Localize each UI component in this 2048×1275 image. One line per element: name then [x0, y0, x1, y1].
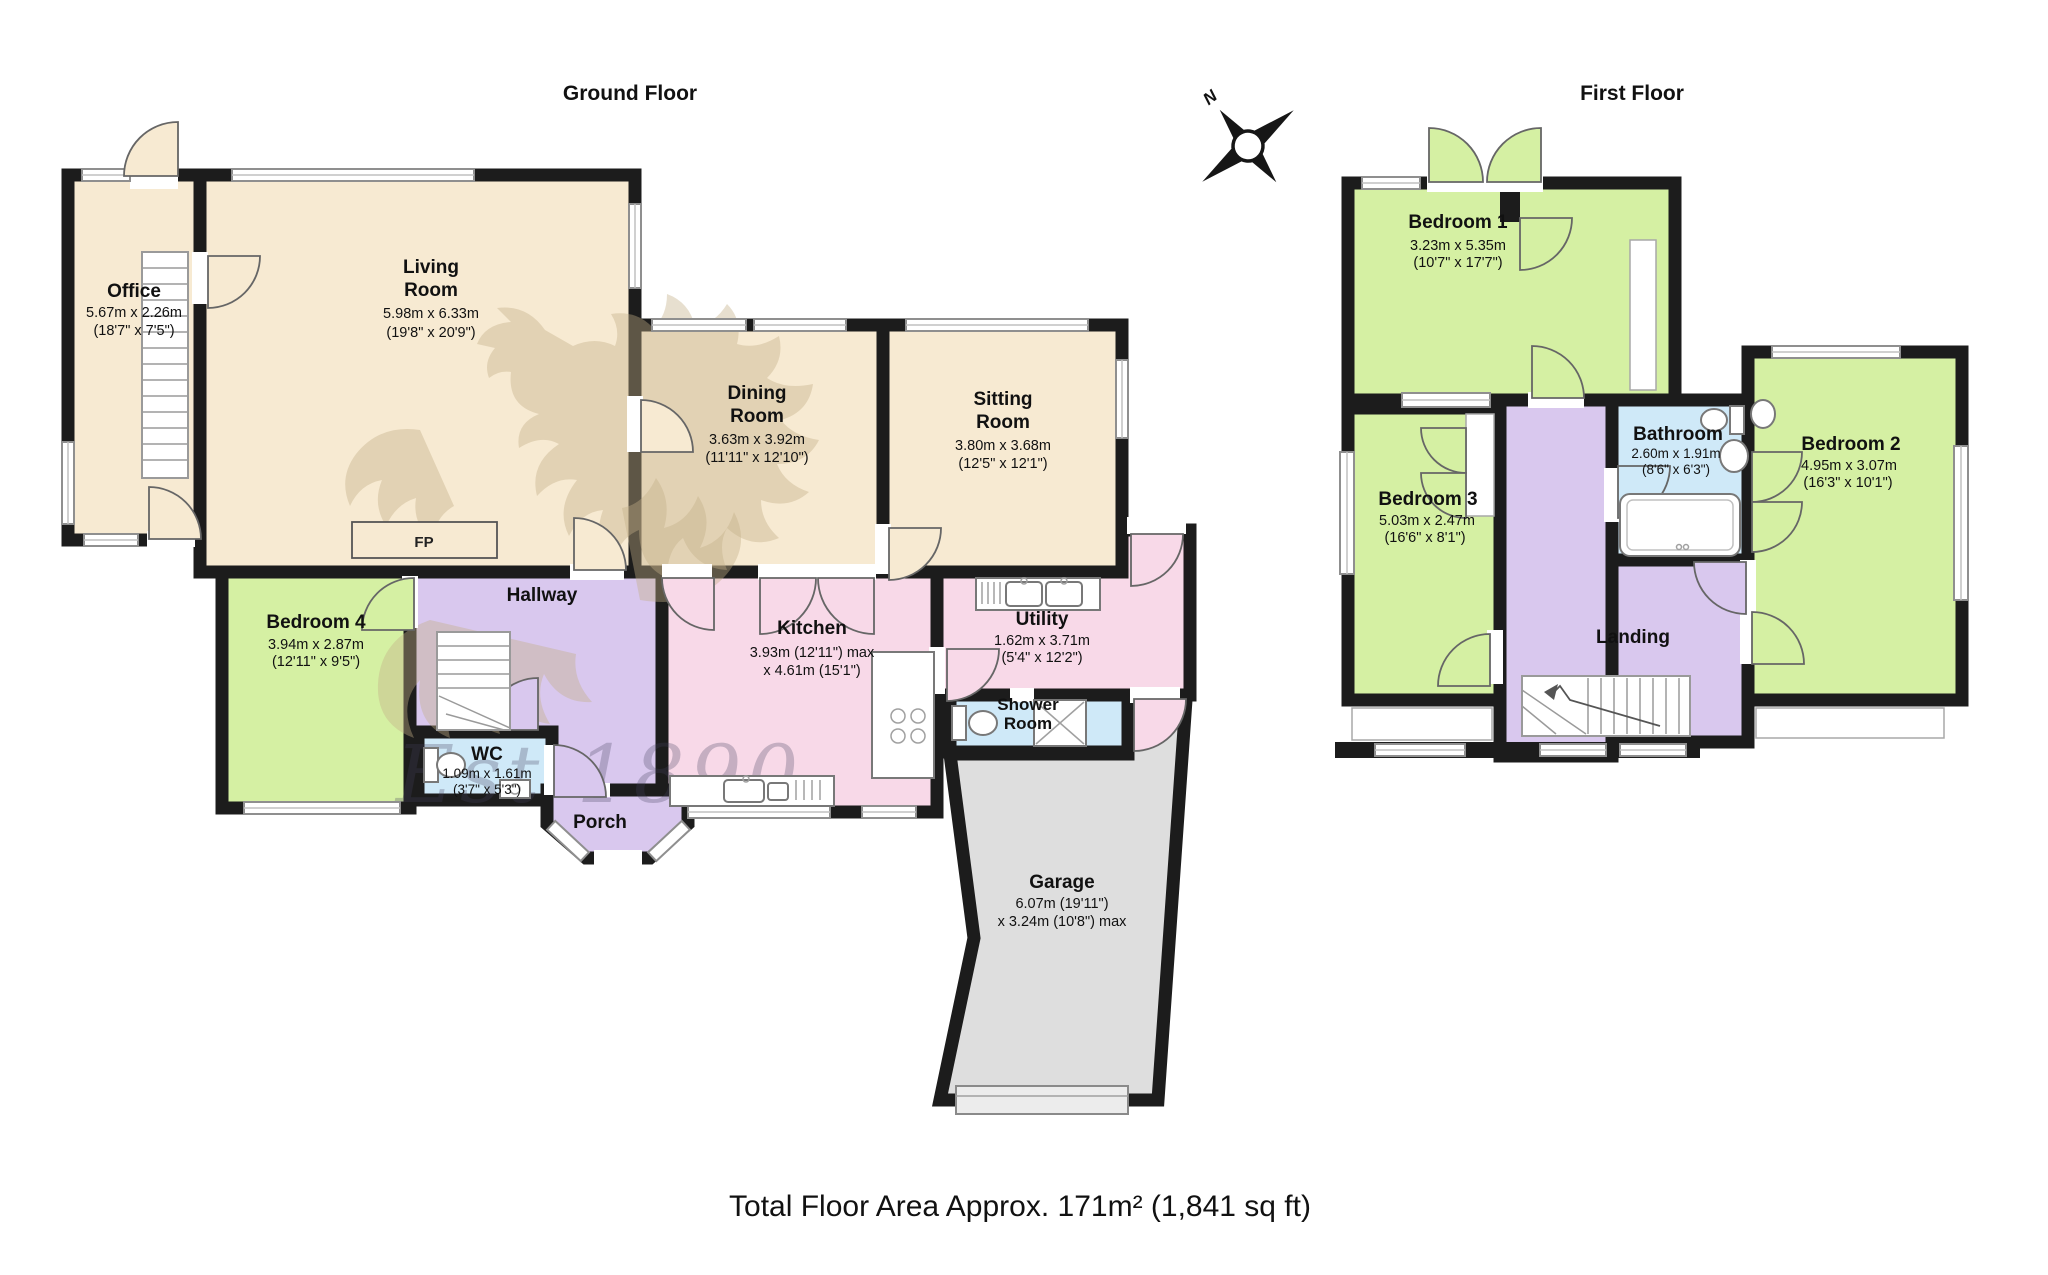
svg-text:3.63m x 3.92m: 3.63m x 3.92m: [709, 432, 805, 448]
first-floor-plan: Bedroom 1 3.23m x 5.35m (10'7" x 17'7") …: [1335, 128, 1968, 758]
svg-text:4.95m x 3.07m: 4.95m x 3.07m: [1801, 458, 1897, 474]
svg-text:(8'6" x 6'3"): (8'6" x 6'3"): [1642, 462, 1710, 477]
svg-text:1.09m x 1.61m: 1.09m x 1.61m: [442, 766, 531, 781]
room-label-landing: Landing: [1596, 627, 1670, 648]
compass-north-label: N: [1199, 86, 1221, 109]
bathtub-icon: [1620, 494, 1740, 556]
garage-door: [956, 1086, 1128, 1114]
toilet-icon: [1730, 406, 1744, 434]
svg-text:(5'4" x 12'2"): (5'4" x 12'2"): [1001, 650, 1082, 666]
room-label-porch: Porch: [573, 812, 627, 833]
room-label-kitchen: Kitchen: [777, 618, 847, 639]
room-label-office: Office: [107, 281, 161, 302]
toilet-icon: [424, 748, 438, 782]
room-label-shower: Shower: [997, 695, 1059, 714]
first-floor-title: First Floor: [1580, 82, 1684, 105]
svg-text:(18'7" x 7'5"): (18'7" x 7'5"): [93, 323, 174, 339]
room-label-dining: Dining: [727, 383, 786, 404]
basin-icon: [1720, 440, 1748, 472]
room-label-bedroom4: Bedroom 4: [266, 612, 366, 633]
room-label-hallway: Hallway: [507, 585, 578, 606]
utility-sink: [976, 578, 1100, 610]
fireplace-label: FP: [414, 534, 433, 551]
ground-floor-title: Ground Floor: [563, 82, 697, 105]
total-floor-area: Total Floor Area Approx. 171m² (1,841 sq…: [729, 1190, 1311, 1223]
svg-text:(3'7" x 5'3"): (3'7" x 5'3"): [453, 782, 521, 797]
french-door-arc: [1429, 128, 1483, 182]
svg-text:6.07m (19'11"): 6.07m (19'11"): [1015, 896, 1108, 912]
fireplace: FP: [352, 522, 497, 558]
svg-text:5.67m x 2.26m: 5.67m x 2.26m: [86, 305, 182, 321]
svg-text:3.94m x 2.87m: 3.94m x 2.87m: [268, 637, 364, 653]
floorplan-image: Est 1890: [0, 0, 2048, 1275]
svg-text:(10'7" x 17'7"): (10'7" x 17'7"): [1413, 255, 1502, 271]
staircase-first-floor: [1522, 676, 1690, 736]
svg-text:(11'11" x 12'10"): (11'11" x 12'10"): [705, 450, 808, 466]
svg-text:5.03m x 2.47m: 5.03m x 2.47m: [1379, 513, 1475, 529]
svg-text:x 4.61m (15'1"): x 4.61m (15'1"): [763, 663, 860, 679]
svg-text:5.98m x 6.33m: 5.98m x 6.33m: [383, 306, 479, 322]
room-label-bedroom2: Bedroom 2: [1801, 434, 1900, 455]
toilet-icon: [952, 706, 966, 740]
svg-text:(12'11" x 9'5"): (12'11" x 9'5"): [272, 654, 360, 670]
svg-text:Room: Room: [730, 406, 784, 427]
svg-text:3.93m (12'11") max: 3.93m (12'11") max: [750, 645, 875, 661]
room-label-sitting: Sitting: [973, 389, 1032, 410]
staircase-hallway: [437, 632, 510, 730]
room-label-bathroom: Bathroom: [1633, 424, 1723, 445]
svg-text:2.60m x 1.91m: 2.60m x 1.91m: [1631, 446, 1720, 461]
room-label-garage: Garage: [1029, 872, 1094, 893]
svg-text:Room: Room: [976, 412, 1030, 433]
svg-text:(12'5" x 12'1"): (12'5" x 12'1"): [958, 456, 1047, 472]
room-label-wc: WC: [471, 744, 503, 765]
svg-text:1.62m x 3.71m: 1.62m x 3.71m: [994, 633, 1090, 649]
basin-icon: [1751, 400, 1775, 428]
svg-text:3.23m x 5.35m: 3.23m x 5.35m: [1410, 238, 1506, 254]
svg-text:(16'3" x 10'1"): (16'3" x 10'1"): [1803, 475, 1892, 491]
svg-text:Room: Room: [404, 280, 458, 301]
room-label-utility: Utility: [1016, 609, 1069, 630]
floorplan-page: Est 1890: [0, 0, 2048, 1275]
room-label-bedroom3: Bedroom 3: [1378, 489, 1477, 510]
room-label-living: Living: [403, 257, 459, 278]
compass-rose: N: [1159, 54, 1322, 218]
svg-text:Room: Room: [1004, 714, 1052, 733]
kitchen-sink-icon: [724, 780, 764, 802]
svg-text:3.80m x 3.68m: 3.80m x 3.68m: [955, 438, 1051, 454]
svg-text:(16'6" x 8'1"): (16'6" x 8'1"): [1384, 530, 1465, 546]
front-door-arc: [124, 122, 178, 176]
svg-text:(19'8" x 20'9"): (19'8" x 20'9"): [386, 325, 475, 341]
room-label-bedroom1: Bedroom 1: [1408, 212, 1508, 233]
svg-text:x 3.24m (10'8") max: x 3.24m (10'8") max: [998, 914, 1128, 930]
ground-floor-plan: Est 1890: [62, 122, 1190, 1114]
french-door-arc: [1487, 128, 1541, 182]
